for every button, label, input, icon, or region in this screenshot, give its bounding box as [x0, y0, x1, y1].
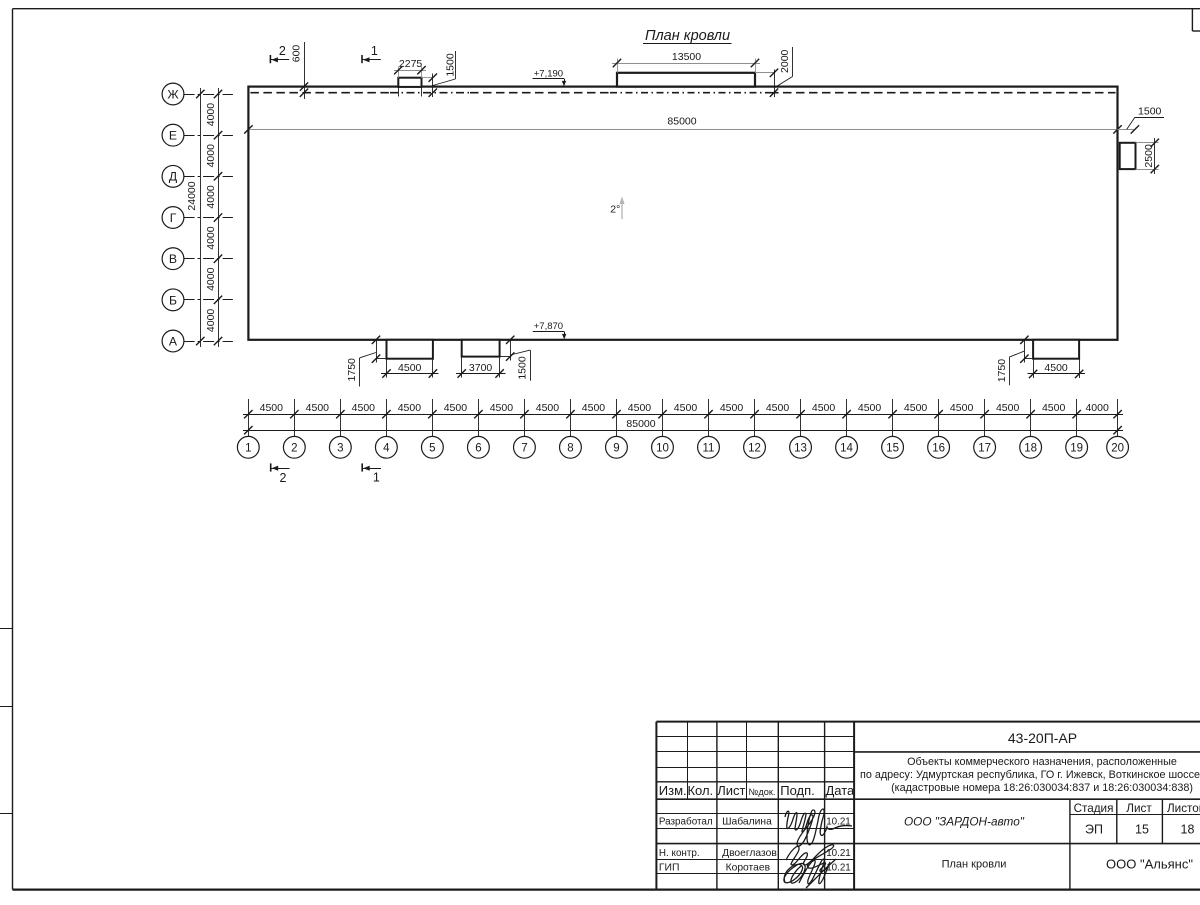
svg-text:ГИП: ГИП: [659, 863, 680, 874]
svg-text:А: А: [169, 334, 178, 348]
svg-text:Двоеглазов: Двоеглазов: [722, 848, 777, 859]
svg-text:19: 19: [1070, 443, 1083, 455]
svg-text:2°: 2°: [610, 204, 620, 216]
svg-text:15: 15: [1135, 823, 1149, 837]
svg-text:4500: 4500: [720, 402, 744, 414]
svg-text:16: 16: [932, 443, 945, 455]
svg-text:4500: 4500: [858, 402, 882, 414]
svg-text:4500: 4500: [950, 402, 974, 414]
svg-text:18: 18: [1181, 823, 1195, 837]
svg-text:Кол.: Кол.: [687, 783, 713, 798]
svg-text:4500: 4500: [1042, 402, 1066, 414]
svg-text:2000: 2000: [779, 49, 791, 73]
svg-text:1500: 1500: [1138, 105, 1162, 117]
svg-text:+7,870: +7,870: [534, 321, 563, 332]
svg-text:Листов: Листов: [1167, 802, 1200, 815]
svg-text:1750: 1750: [346, 358, 358, 382]
svg-text:Лист: Лист: [717, 783, 745, 798]
svg-text:11: 11: [703, 443, 715, 455]
svg-text:9: 9: [613, 443, 619, 455]
svg-text:4000: 4000: [1085, 402, 1109, 414]
svg-text:+7,190: +7,190: [534, 68, 563, 79]
svg-text:Объекты коммерческого назначен: Объекты коммерческого назначения, распол…: [907, 756, 1177, 768]
svg-text:1: 1: [371, 44, 378, 58]
svg-text:Г: Г: [170, 211, 177, 225]
svg-text:1500: 1500: [444, 53, 456, 77]
svg-text:Изм.: Изм.: [659, 783, 687, 798]
svg-text:43-20П-АР: 43-20П-АР: [1008, 730, 1077, 746]
svg-text:13: 13: [794, 443, 807, 455]
svg-text:4500: 4500: [674, 402, 698, 414]
svg-text:1750: 1750: [996, 359, 1008, 383]
svg-text:2500: 2500: [1143, 144, 1155, 168]
svg-text:15: 15: [886, 443, 899, 455]
svg-text:ООО "ЗАРДОН-авто": ООО "ЗАРДОН-авто": [904, 814, 1025, 828]
svg-text:Дата: Дата: [826, 783, 856, 798]
svg-text:Ж: Ж: [167, 87, 179, 101]
svg-text:6: 6: [475, 443, 481, 455]
svg-text:Стадия: Стадия: [1074, 802, 1114, 815]
svg-text:№док.: №док.: [749, 787, 776, 797]
svg-text:20: 20: [1111, 443, 1124, 455]
svg-text:Коротаев: Коротаев: [726, 862, 771, 873]
svg-text:4500: 4500: [996, 402, 1020, 414]
svg-text:4000: 4000: [205, 267, 217, 291]
svg-text:4500: 4500: [904, 402, 928, 414]
svg-text:4500: 4500: [352, 402, 376, 414]
svg-text:13500: 13500: [672, 51, 701, 63]
svg-text:2: 2: [279, 44, 286, 58]
svg-text:2275: 2275: [399, 58, 423, 70]
svg-text:В: В: [169, 252, 177, 266]
svg-text:4500: 4500: [582, 402, 606, 414]
svg-text:4500: 4500: [628, 402, 652, 414]
svg-text:4000: 4000: [205, 185, 217, 209]
svg-text:4500: 4500: [398, 362, 422, 374]
svg-text:4500: 4500: [444, 402, 468, 414]
svg-text:10: 10: [656, 443, 669, 455]
svg-text:2: 2: [291, 443, 297, 455]
svg-text:17: 17: [978, 443, 991, 455]
svg-text:4500: 4500: [1044, 362, 1068, 374]
svg-text:85000: 85000: [626, 418, 655, 430]
svg-text:85000: 85000: [667, 116, 696, 128]
svg-text:4500: 4500: [812, 402, 836, 414]
svg-text:по адресу: Удмуртская республи: по адресу: Удмуртская республика, ГО г. …: [860, 769, 1200, 781]
svg-text:Н. контр.: Н. контр.: [659, 848, 700, 859]
svg-text:4500: 4500: [766, 402, 790, 414]
svg-text:4500: 4500: [536, 402, 560, 414]
svg-text:Б: Б: [169, 293, 177, 307]
svg-text:3700: 3700: [469, 362, 493, 374]
svg-text:4500: 4500: [306, 402, 330, 414]
svg-text:600: 600: [291, 45, 303, 63]
svg-text:4000: 4000: [205, 309, 217, 333]
svg-text:5: 5: [429, 443, 435, 455]
svg-text:Шабалина: Шабалина: [722, 816, 772, 828]
svg-text:Разработал: Разработал: [659, 817, 713, 828]
svg-text:План кровли: План кровли: [942, 859, 1007, 871]
svg-text:Подп.: Подп.: [780, 783, 815, 798]
svg-text:4000: 4000: [205, 144, 217, 168]
svg-text:4500: 4500: [260, 402, 284, 414]
svg-text:2: 2: [280, 471, 287, 485]
svg-text:4: 4: [383, 443, 390, 455]
svg-text:8: 8: [567, 443, 573, 455]
svg-text:18: 18: [1024, 443, 1037, 455]
svg-text:24000: 24000: [186, 181, 198, 210]
svg-text:4500: 4500: [490, 402, 514, 414]
svg-text:Е: Е: [169, 129, 177, 143]
svg-text:(кадастровые номера 18:26:0300: (кадастровые номера 18:26:030034:837 и 1…: [891, 782, 1193, 794]
svg-text:ЭП: ЭП: [1085, 823, 1103, 837]
svg-text:4000: 4000: [205, 226, 217, 250]
svg-text:ООО "Альянс": ООО "Альянс": [1106, 857, 1193, 872]
svg-text:3: 3: [337, 443, 343, 455]
svg-text:7: 7: [521, 443, 527, 455]
svg-text:Д: Д: [169, 170, 178, 184]
svg-text:12: 12: [748, 443, 761, 455]
svg-text:4500: 4500: [398, 402, 422, 414]
svg-text:План кровли: План кровли: [645, 28, 730, 44]
svg-text:Лист: Лист: [1126, 802, 1152, 815]
svg-text:1: 1: [373, 471, 380, 485]
svg-text:14: 14: [840, 443, 853, 455]
svg-text:1500: 1500: [517, 356, 529, 380]
svg-text:1: 1: [245, 443, 251, 455]
svg-text:4000: 4000: [205, 103, 217, 127]
